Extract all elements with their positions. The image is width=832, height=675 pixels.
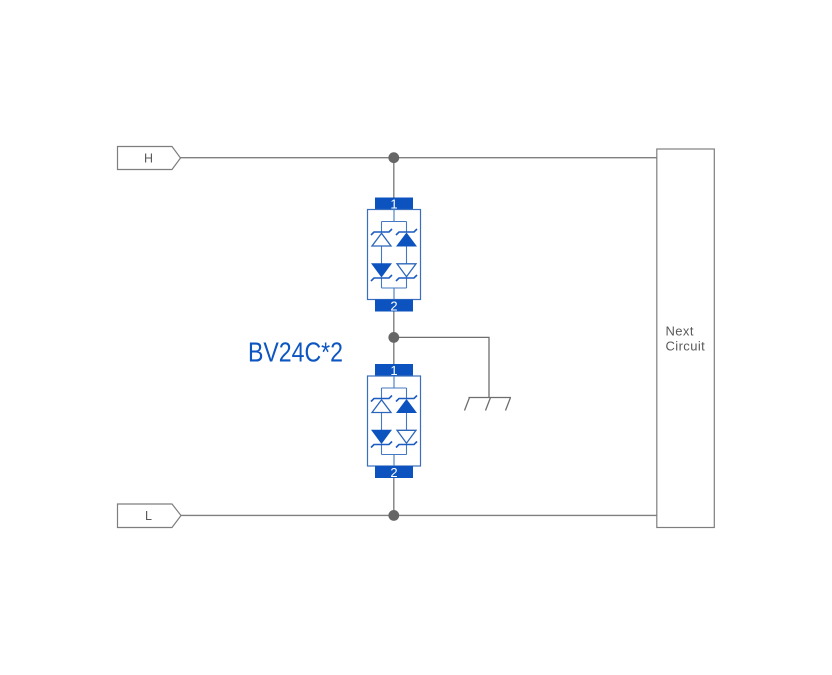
svg-text:L: L	[145, 509, 152, 523]
svg-text:2: 2	[390, 299, 397, 314]
svg-text:H: H	[144, 151, 153, 165]
svg-text:Next: Next	[666, 324, 694, 339]
svg-text:2: 2	[390, 465, 397, 480]
svg-text:Circuit: Circuit	[666, 339, 706, 354]
svg-text:BV24C*2: BV24C*2	[248, 337, 343, 368]
